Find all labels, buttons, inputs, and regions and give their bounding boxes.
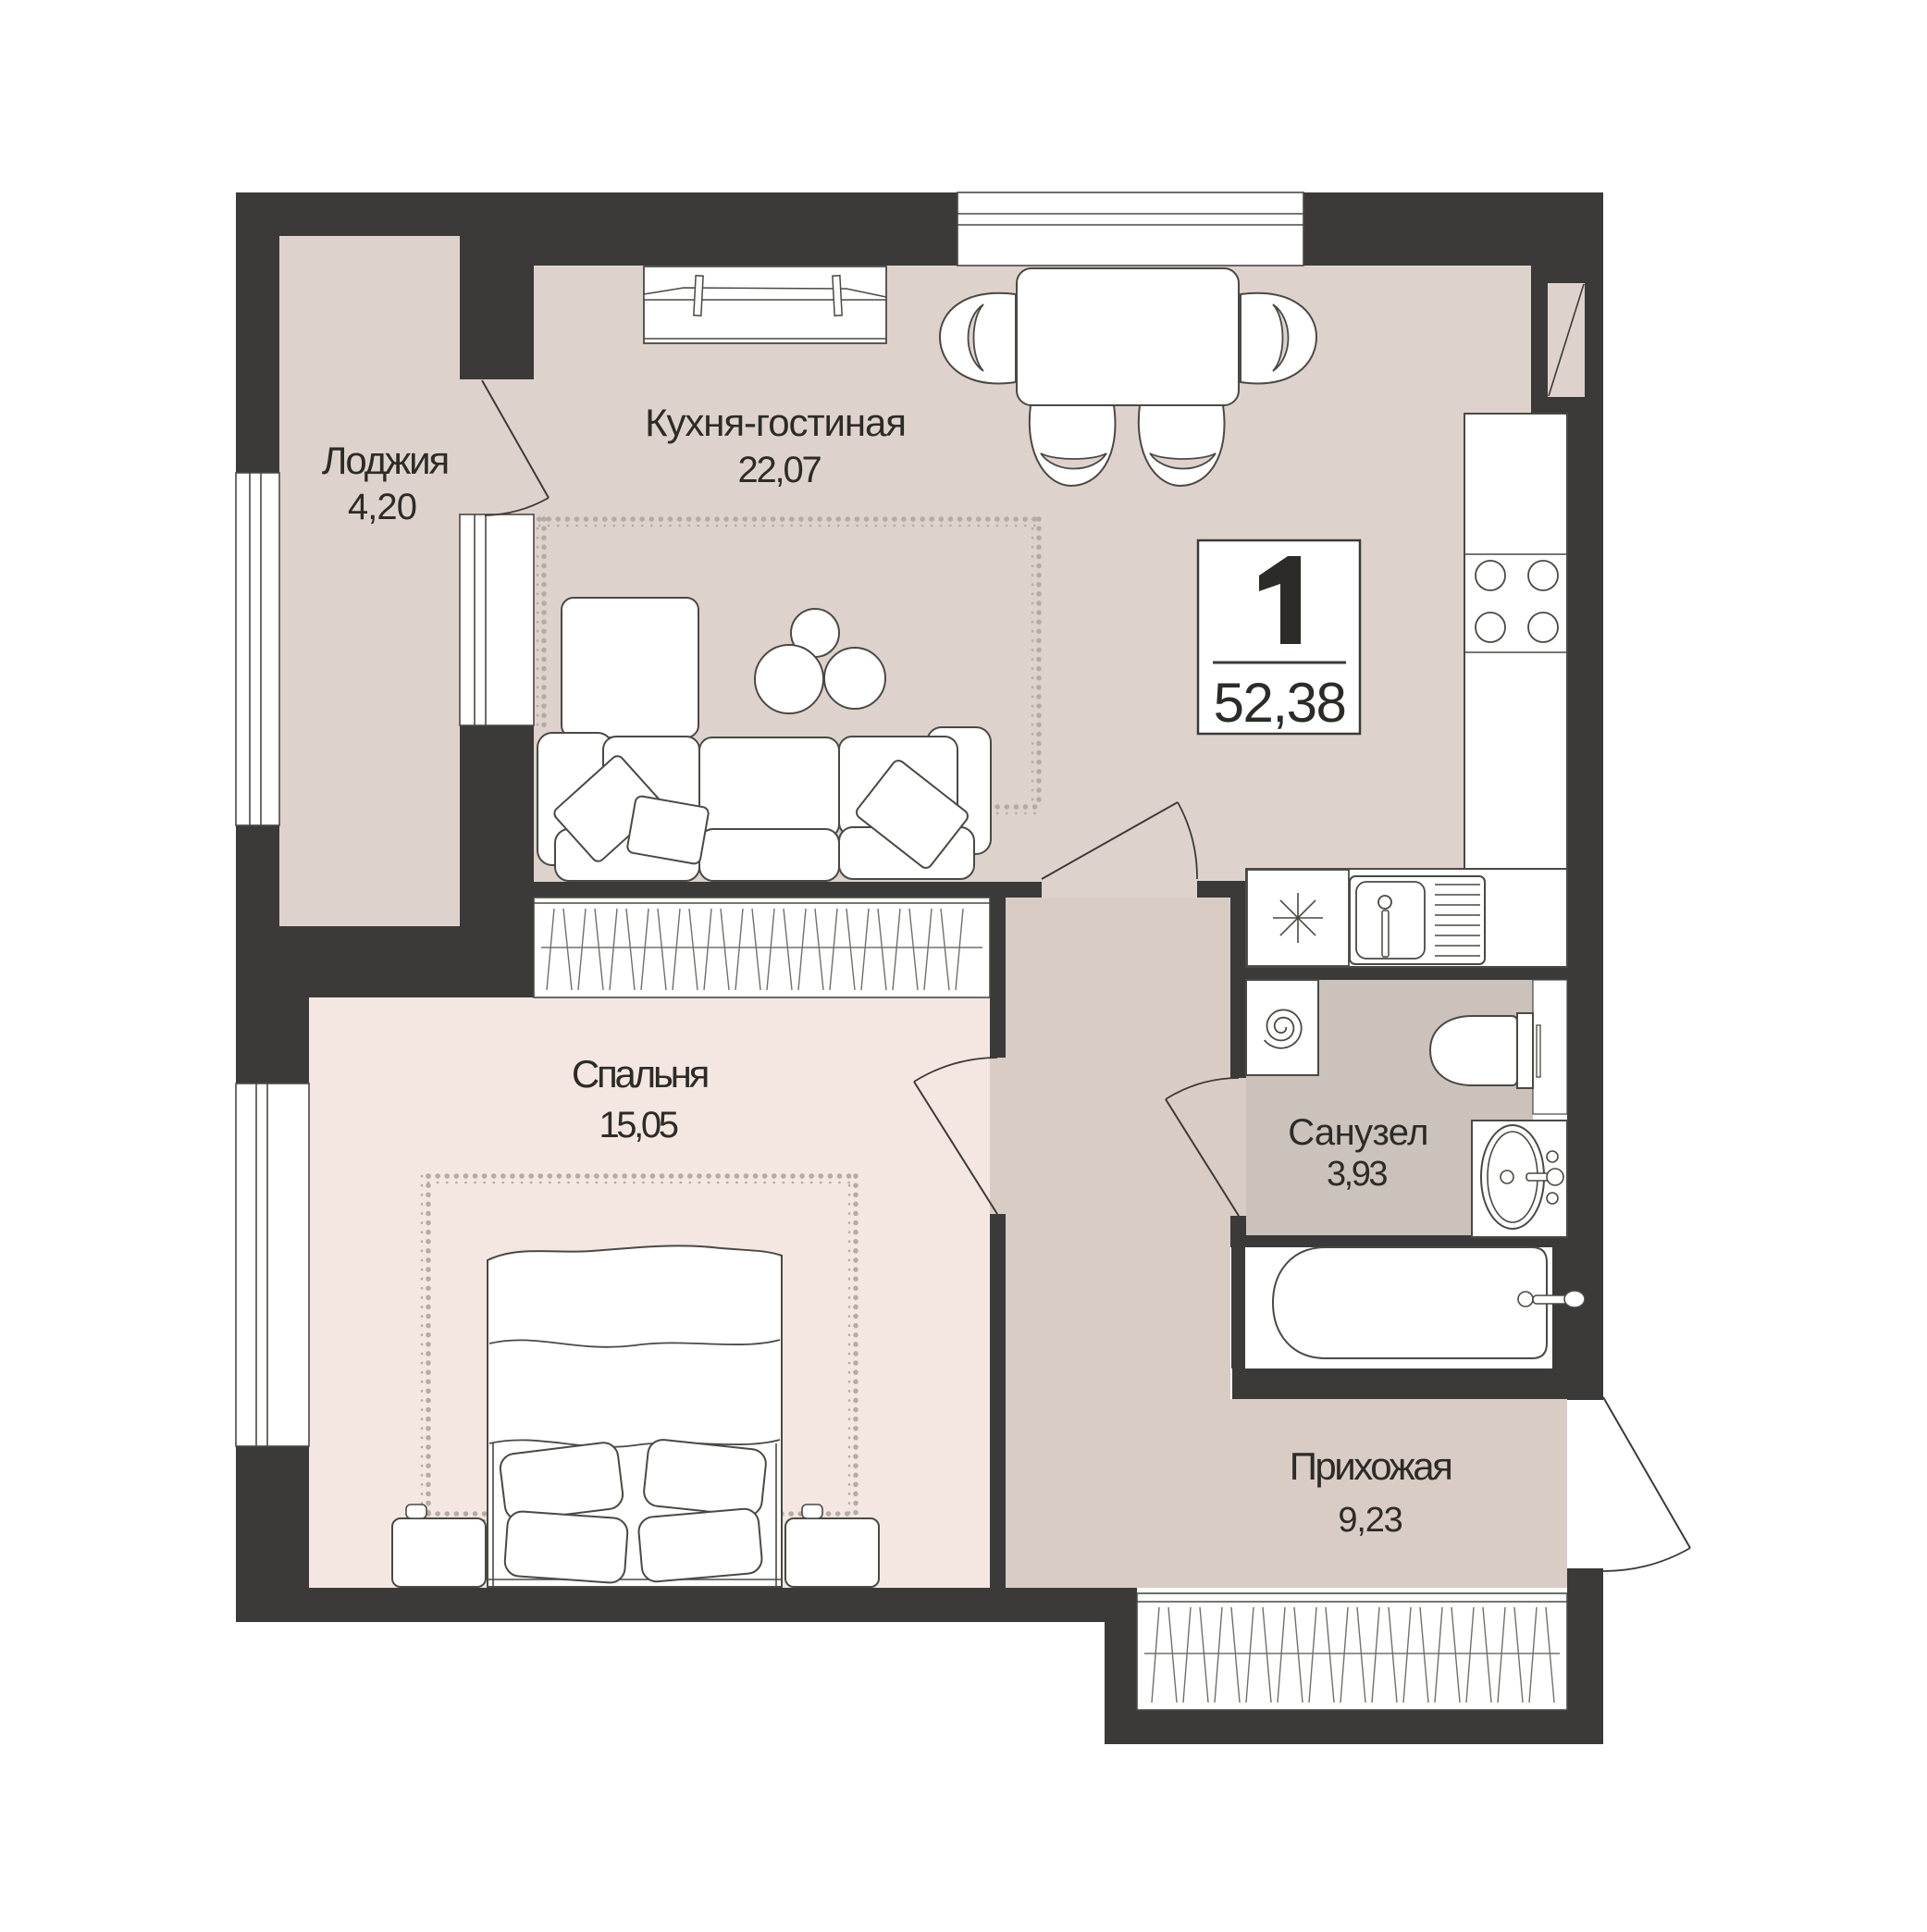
svg-text:9,23: 9,23	[1338, 1501, 1402, 1540]
svg-text:Лоджия: Лоджия	[322, 439, 448, 482]
svg-text:Прихожая: Прихожая	[1290, 1444, 1451, 1488]
svg-text:Спальня: Спальня	[572, 1052, 708, 1096]
svg-text:52,38: 52,38	[1214, 672, 1346, 734]
svg-text:Санузел: Санузел	[1288, 1112, 1428, 1153]
svg-text:Кухня-гостиная: Кухня-гостиная	[645, 401, 906, 444]
svg-text:22,07: 22,07	[737, 450, 821, 490]
svg-text:15,05: 15,05	[599, 1105, 677, 1146]
svg-text:3,93: 3,93	[1327, 1155, 1387, 1194]
svg-text:4,20: 4,20	[348, 487, 416, 527]
